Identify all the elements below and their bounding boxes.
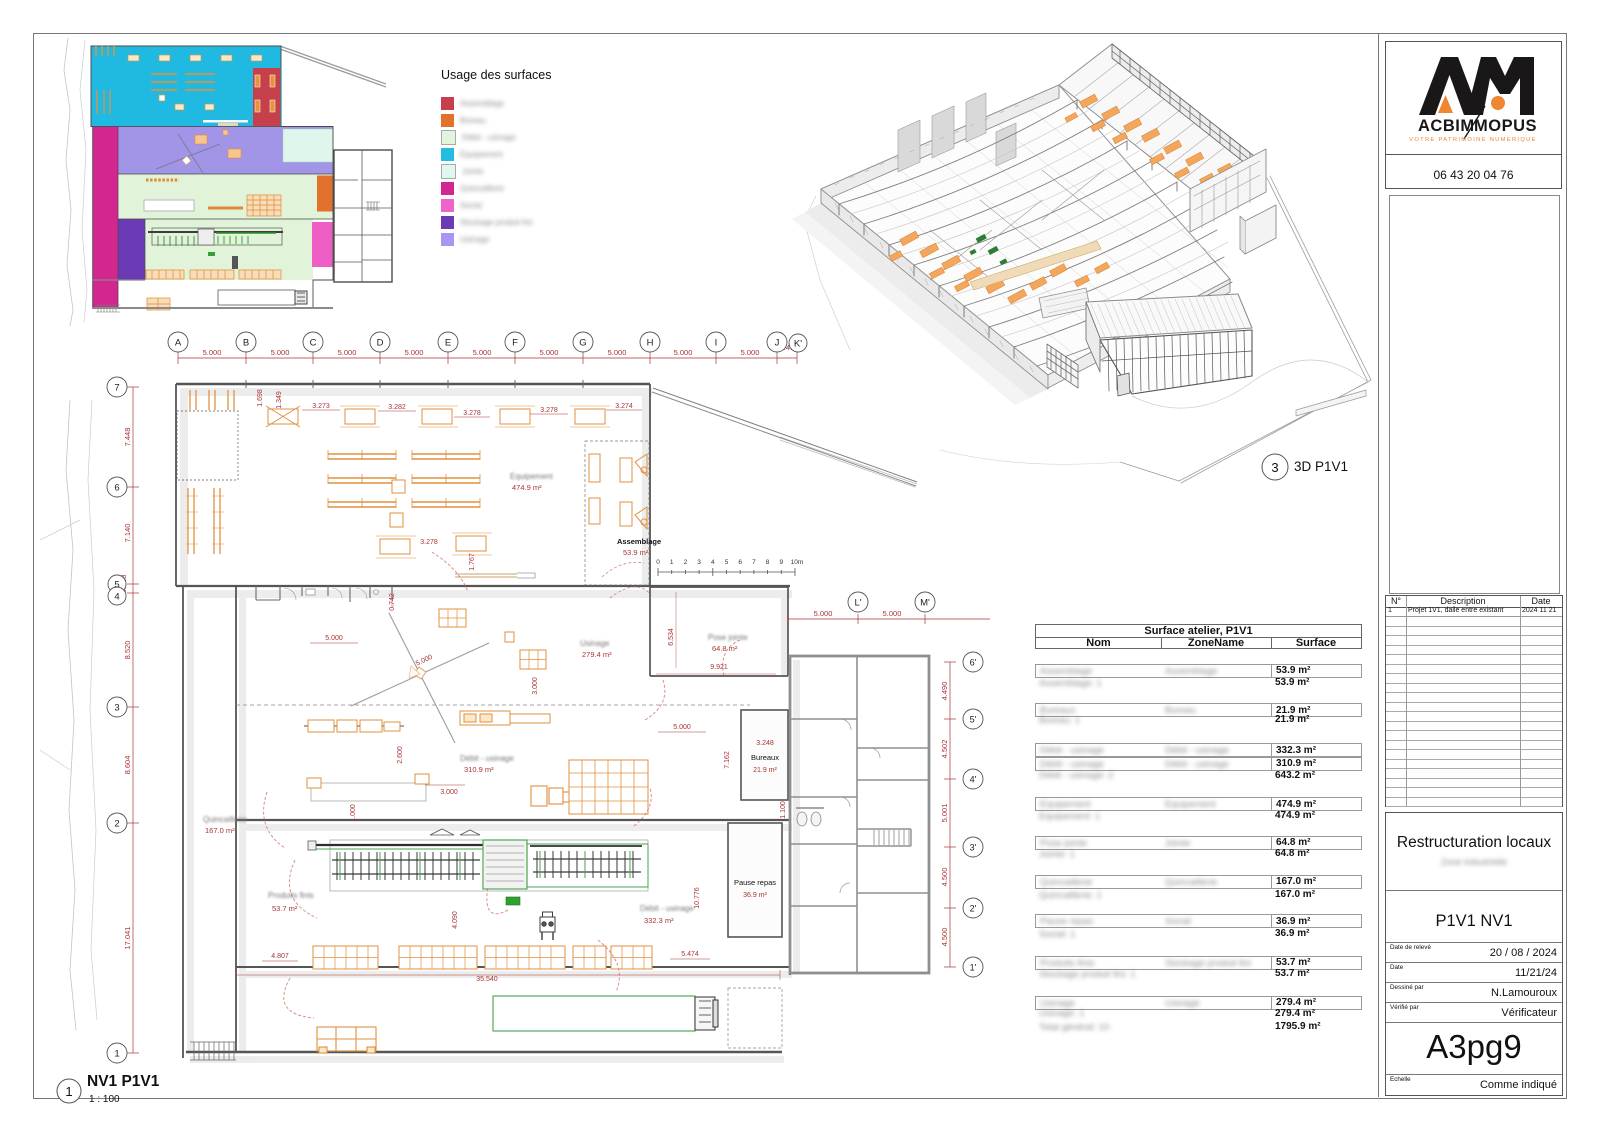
- svg-text:3: 3: [1271, 460, 1278, 475]
- svg-text:3.248: 3.248: [756, 740, 774, 747]
- svg-text:I: I: [715, 338, 718, 349]
- svg-text:M': M': [920, 598, 930, 609]
- svg-text:B: B: [243, 338, 249, 349]
- svg-text:6: 6: [114, 483, 119, 494]
- svg-text:8: 8: [766, 559, 770, 566]
- svg-text:5.000: 5.000: [405, 348, 424, 357]
- svg-text:3D P1V1: 3D P1V1: [1294, 459, 1348, 474]
- svg-text:VOTRE PATRIMOINE NUMERIQUE: VOTRE PATRIMOINE NUMERIQUE: [1409, 137, 1537, 143]
- svg-text:5': 5': [970, 715, 977, 725]
- svg-text:2: 2: [114, 819, 119, 830]
- svg-text:4: 4: [711, 559, 715, 566]
- svg-text:5.000: 5.000: [415, 654, 434, 668]
- svg-text:5.000: 5.000: [814, 609, 833, 618]
- svg-text:36.9 m²: 36.9 m²: [743, 892, 767, 899]
- svg-text:21.9 m²: 21.9 m²: [753, 767, 777, 774]
- svg-text:4: 4: [114, 592, 119, 603]
- svg-text:17.041: 17.041: [123, 927, 132, 950]
- svg-text:1.767: 1.767: [469, 553, 476, 571]
- svg-text:1.349: 1.349: [276, 391, 283, 409]
- svg-text:1 : 100: 1 : 100: [89, 1094, 120, 1105]
- svg-text:5.000: 5.000: [540, 348, 559, 357]
- svg-text:10.776: 10.776: [694, 887, 701, 909]
- svg-text:474.9 m²: 474.9 m²: [512, 483, 542, 492]
- svg-text:6: 6: [738, 559, 742, 566]
- svg-text:A: A: [175, 338, 182, 349]
- svg-text:D: D: [377, 338, 384, 349]
- svg-text:Assemblage: Assemblage: [617, 537, 661, 546]
- svg-text:Pause repas: Pause repas: [734, 878, 776, 887]
- svg-text:53.7 m²: 53.7 m²: [272, 904, 298, 913]
- svg-text:J: J: [775, 338, 780, 349]
- svg-text:0.742: 0.742: [389, 593, 396, 611]
- svg-text:NV1 P1V1: NV1 P1V1: [87, 1073, 160, 1090]
- svg-text:1: 1: [114, 1049, 119, 1060]
- svg-text:0: 0: [656, 559, 660, 566]
- svg-text:3.278: 3.278: [463, 410, 481, 417]
- svg-text:Bureaux: Bureaux: [751, 753, 779, 762]
- svg-text:7: 7: [752, 559, 756, 566]
- svg-text:7: 7: [114, 383, 119, 394]
- svg-text:10m: 10m: [791, 559, 804, 566]
- svg-text:5.000: 5.000: [203, 348, 222, 357]
- svg-text:6.534: 6.534: [668, 628, 675, 646]
- svg-text:6': 6': [970, 658, 977, 668]
- svg-text:3': 3': [970, 843, 977, 853]
- svg-text:4.090: 4.090: [452, 911, 459, 929]
- svg-text:5.000: 5.000: [673, 724, 691, 731]
- svg-text:ACBIM: ACBIM: [1418, 117, 1475, 135]
- svg-text:2.600: 2.600: [397, 746, 404, 764]
- svg-text:L': L': [854, 598, 861, 609]
- svg-text:Quincaillerie: Quincaillerie: [203, 815, 248, 824]
- svg-text:5.001: 5.001: [940, 804, 949, 823]
- svg-text:5.000: 5.000: [325, 635, 343, 642]
- svg-text:332.3 m²: 332.3 m²: [644, 916, 674, 925]
- svg-text:8.604: 8.604: [123, 756, 132, 775]
- svg-text:1: 1: [670, 559, 674, 566]
- svg-text:1: 1: [65, 1084, 72, 1099]
- svg-text:1.100: 1.100: [780, 801, 787, 819]
- svg-text:4.502: 4.502: [940, 740, 949, 759]
- svg-text:4.500: 4.500: [940, 928, 949, 947]
- svg-text:2: 2: [684, 559, 688, 566]
- svg-text:K': K': [794, 339, 802, 350]
- svg-text:7.162: 7.162: [724, 751, 731, 769]
- svg-text:8.520: 8.520: [123, 641, 132, 660]
- svg-text:35.540: 35.540: [476, 976, 498, 983]
- svg-text:7.448: 7.448: [123, 428, 132, 447]
- svg-text:H: H: [647, 338, 654, 349]
- svg-text:Débit - usinage: Débit - usinage: [640, 904, 694, 913]
- svg-text:167.0 m²: 167.0 m²: [205, 826, 235, 835]
- svg-text:5.000: 5.000: [741, 348, 760, 357]
- svg-text:9: 9: [779, 559, 783, 566]
- svg-text:5.000: 5.000: [271, 348, 290, 357]
- svg-text:7.140: 7.140: [123, 524, 132, 543]
- svg-text:5: 5: [725, 559, 729, 566]
- svg-text:C: C: [310, 338, 317, 349]
- svg-text:1.698: 1.698: [257, 389, 264, 407]
- svg-text:53.9 m²: 53.9 m²: [623, 548, 649, 557]
- svg-text:3: 3: [114, 703, 119, 714]
- svg-text:9.921: 9.921: [710, 664, 728, 671]
- svg-text:310.9 m²: 310.9 m²: [464, 765, 494, 774]
- svg-text:4.807: 4.807: [271, 953, 289, 960]
- svg-text:4': 4': [970, 775, 977, 785]
- svg-text:5.000: 5.000: [883, 609, 902, 618]
- svg-text:5.000: 5.000: [338, 348, 357, 357]
- svg-text:5.474: 5.474: [681, 951, 699, 958]
- svg-text:E: E: [445, 338, 451, 349]
- svg-text:3.278: 3.278: [540, 407, 558, 414]
- svg-text:1.000: 1.000: [350, 804, 357, 822]
- svg-text:3.274: 3.274: [615, 403, 633, 410]
- svg-text:64.8 m²: 64.8 m²: [712, 644, 738, 653]
- svg-text:Equipement: Equipement: [510, 472, 553, 481]
- svg-text:5.000: 5.000: [674, 348, 693, 357]
- svg-text:1': 1': [970, 963, 977, 973]
- svg-text:Débit - usinage: Débit - usinage: [460, 754, 514, 763]
- svg-text:Produits finis: Produits finis: [268, 891, 314, 900]
- svg-text:5: 5: [114, 580, 119, 591]
- svg-text:F: F: [512, 338, 518, 349]
- svg-text:3.000: 3.000: [532, 677, 539, 695]
- svg-text:3.000: 3.000: [440, 789, 458, 796]
- svg-text:MOPUS: MOPUS: [1474, 117, 1537, 135]
- svg-text:3.273: 3.273: [312, 403, 330, 410]
- svg-text:Pose jointe: Pose jointe: [708, 633, 748, 642]
- svg-text:3.278: 3.278: [420, 539, 438, 546]
- svg-text:5.000: 5.000: [608, 348, 627, 357]
- svg-text:279.4 m²: 279.4 m²: [582, 650, 612, 659]
- svg-text:2': 2': [970, 904, 977, 914]
- svg-text:3.282: 3.282: [388, 404, 406, 411]
- svg-text:G: G: [579, 338, 586, 349]
- svg-text:Usinage: Usinage: [580, 639, 610, 648]
- svg-text:4.500: 4.500: [940, 868, 949, 887]
- svg-text:3: 3: [697, 559, 701, 566]
- svg-text:4.490: 4.490: [940, 682, 949, 701]
- svg-text:5.000: 5.000: [473, 348, 492, 357]
